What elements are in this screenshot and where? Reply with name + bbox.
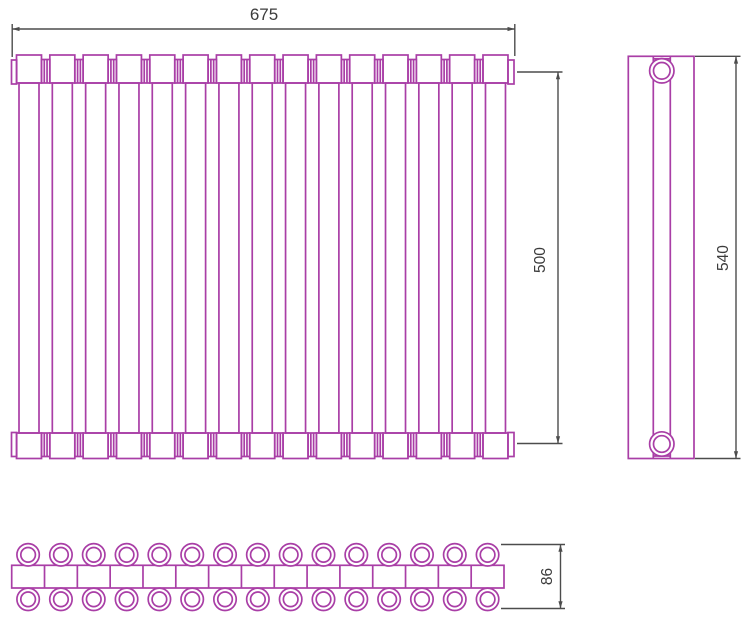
- tube-bottom-collar: [216, 433, 241, 459]
- front-view: [12, 55, 515, 459]
- bottom-view-circles: [17, 544, 499, 611]
- tube-top-collar: [383, 55, 408, 83]
- tube-connector: [308, 60, 316, 84]
- tube-connector: [308, 433, 316, 457]
- overall-height-arrow-bottom: [734, 451, 738, 458]
- drawing-canvas: 675 500 540 86: [0, 0, 750, 622]
- tube-bottom-collar: [483, 433, 508, 459]
- tube-top-collar: [283, 55, 308, 83]
- tube-bottom-collar: [283, 433, 308, 459]
- tube-body: [19, 83, 39, 433]
- tube-connector: [175, 433, 183, 457]
- tube-bottom-collar: [116, 433, 141, 459]
- right-connection-tab-bottom: [508, 433, 514, 457]
- tube-bottom-collar: [17, 433, 42, 459]
- tube-top-collar: [183, 55, 208, 83]
- dimension-depth: 86: [501, 545, 565, 609]
- tube-connector: [42, 60, 50, 84]
- tube-top-collar: [416, 55, 441, 83]
- front-view-tubes: [17, 55, 508, 459]
- tube-connector: [275, 433, 283, 457]
- tube-bottom-collar: [50, 433, 75, 459]
- tube-body: [386, 83, 406, 433]
- depth-arrow-top: [558, 545, 562, 552]
- bottom-view-band: [12, 565, 504, 588]
- tube-bottom-collar: [350, 433, 375, 459]
- tube-top-collar: [150, 55, 175, 83]
- width-arrow-left: [12, 27, 19, 31]
- tube-body: [119, 83, 139, 433]
- tube-connector: [375, 60, 383, 84]
- front-view-connectors: [42, 60, 483, 457]
- tube-connector: [75, 433, 83, 457]
- tube-connector: [408, 60, 416, 84]
- tube-bottom-collar: [416, 433, 441, 459]
- tube-body: [352, 83, 372, 433]
- overall-height-arrow-top: [734, 56, 738, 63]
- tube-top-collar: [250, 55, 275, 83]
- tube-bottom-collar: [83, 433, 108, 459]
- tube-connector: [175, 60, 183, 84]
- connection-height-arrow-bottom: [556, 436, 560, 443]
- tube-connector: [375, 433, 383, 457]
- tube-connector: [108, 433, 116, 457]
- left-connection-tab-bottom: [12, 433, 17, 457]
- depth-dimension-label: 86: [539, 568, 556, 585]
- tube-body: [252, 83, 272, 433]
- side-view: [628, 56, 694, 458]
- side-view-body: [628, 56, 694, 458]
- tube-top-collar: [450, 55, 475, 83]
- dimension-connection-height: 500: [517, 72, 563, 444]
- tube-connector: [141, 60, 149, 84]
- tube-top-collar: [116, 55, 141, 83]
- tube-connector: [441, 433, 449, 457]
- tube-body: [485, 83, 505, 433]
- tube-body: [286, 83, 306, 433]
- tube-bottom-collar: [150, 433, 175, 459]
- tube-connector: [475, 433, 483, 457]
- tube-body: [86, 83, 106, 433]
- tube-connector: [408, 433, 416, 457]
- tube-top-collar: [483, 55, 508, 83]
- width-arrow-right: [508, 27, 515, 31]
- tube-bottom-collar: [450, 433, 475, 459]
- tube-body: [52, 83, 72, 433]
- left-connection-tab-top: [12, 60, 17, 84]
- tube-connector: [75, 60, 83, 84]
- bottom-view: [12, 544, 504, 611]
- tube-bottom-collar: [316, 433, 341, 459]
- tube-connector: [208, 60, 216, 84]
- tube-connector: [208, 433, 216, 457]
- depth-arrow-bottom: [558, 601, 562, 608]
- overall-height-dimension-label: 540: [715, 245, 732, 271]
- tube-connector: [475, 60, 483, 84]
- tube-connector: [341, 433, 349, 457]
- right-connection-tab-top: [508, 60, 514, 84]
- tube-body: [452, 83, 472, 433]
- tube-connector: [42, 433, 50, 457]
- tube-connector: [275, 60, 283, 84]
- tube-top-collar: [83, 55, 108, 83]
- tube-top-collar: [216, 55, 241, 83]
- tube-body: [419, 83, 439, 433]
- connection-height-arrow-top: [556, 72, 560, 79]
- tube-top-collar: [350, 55, 375, 83]
- bottom-view-sections: [45, 565, 472, 588]
- tube-connector: [341, 60, 349, 84]
- tube-body: [319, 83, 339, 433]
- tube-connector: [241, 60, 249, 84]
- tube-bottom-collar: [383, 433, 408, 459]
- width-dimension-label: 675: [250, 5, 278, 24]
- tube-connector: [241, 433, 249, 457]
- tube-connector: [108, 60, 116, 84]
- tube-connector: [441, 60, 449, 84]
- tube-bottom-collar: [250, 433, 275, 459]
- tube-top-collar: [50, 55, 75, 83]
- tube-bottom-collar: [183, 433, 208, 459]
- connection-height-dimension-label: 500: [532, 247, 549, 273]
- tube-top-collar: [316, 55, 341, 83]
- tube-top-collar: [17, 55, 42, 83]
- tube-body: [219, 83, 239, 433]
- tube-connector: [141, 433, 149, 457]
- tube-body: [186, 83, 206, 433]
- radiator-technical-drawing: 675 500 540 86: [0, 0, 750, 622]
- dimension-width: 675: [12, 5, 515, 57]
- tube-body: [152, 83, 172, 433]
- dimension-overall-height: 540: [695, 56, 741, 458]
